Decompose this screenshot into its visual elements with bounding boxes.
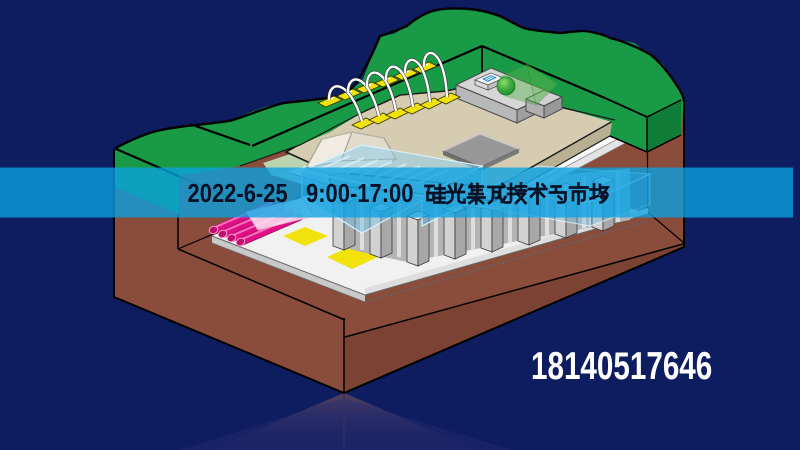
svg-text:2022-6-25 9:00-17:00: 2022-6-25 9:00-17:00 <box>188 180 414 209</box>
svg-text:18140517646: 18140517646 <box>531 345 712 388</box>
